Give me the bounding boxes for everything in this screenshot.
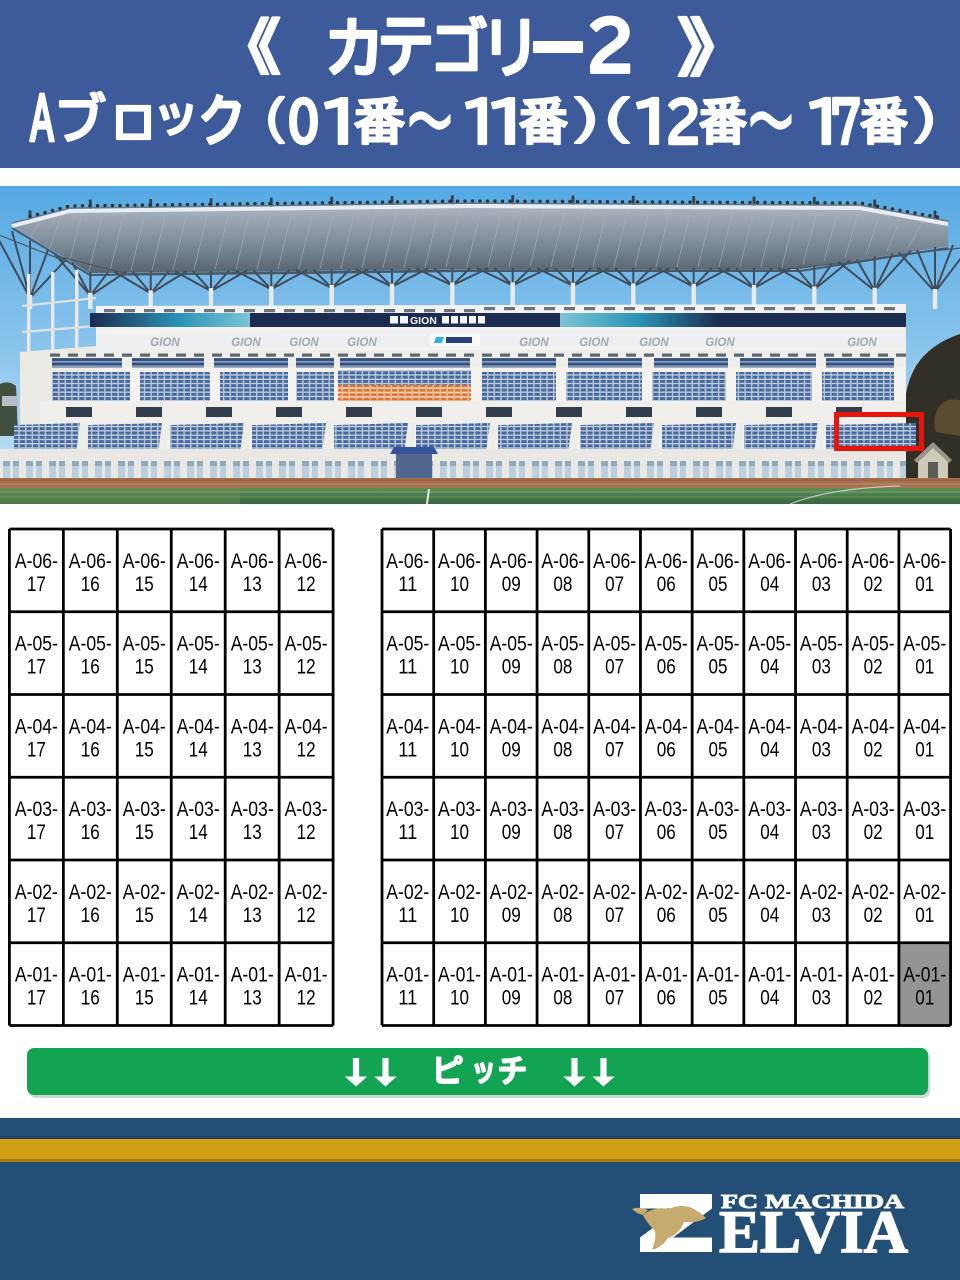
svg-text:ELVIA: ELVIA — [719, 1199, 908, 1265]
